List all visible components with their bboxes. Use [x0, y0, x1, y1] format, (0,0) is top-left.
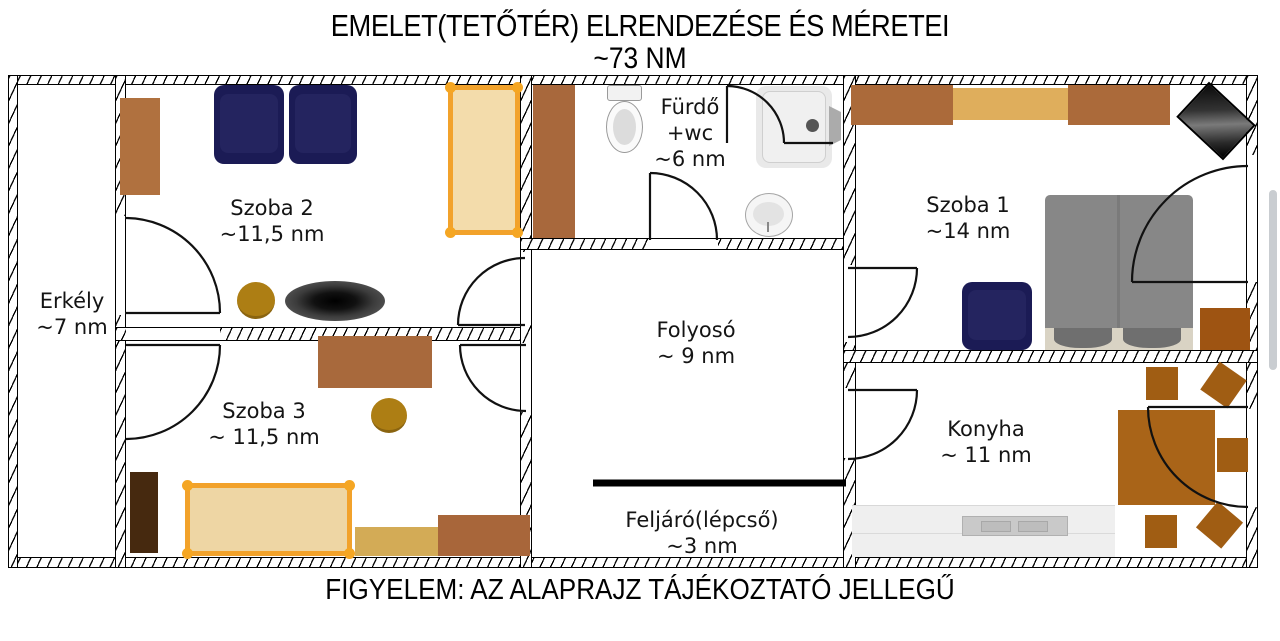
- room-name: Szoba 3: [208, 398, 319, 424]
- room-name: Erkély: [36, 288, 107, 314]
- door-arc-konyha-right: [1148, 407, 1248, 507]
- door-arc-shower: [727, 86, 833, 143]
- room-name: Szoba 1: [926, 192, 1011, 218]
- door-arc-furdo: [650, 173, 717, 240]
- room-area: ~ 11,5 nm: [208, 424, 319, 450]
- room-area: ~11,5 nm: [220, 221, 325, 247]
- room-name: Feljáró(lépcső): [625, 507, 778, 533]
- room-label-furdo: Fürdő +wc ~6 nm: [654, 94, 725, 172]
- door-arc-balcony-szoba2: [125, 218, 220, 313]
- room-area: ~6 nm: [654, 146, 725, 172]
- door-arc-szoba1-balcony: [1132, 166, 1248, 282]
- door-arc-szoba3-top: [126, 345, 220, 439]
- scrollbar-thumb[interactable]: [1269, 190, 1277, 370]
- room-area: ~7 nm: [36, 314, 107, 340]
- room-name: Fürdő: [654, 94, 725, 120]
- room-area: ~3 nm: [625, 533, 778, 559]
- floor-plan-page: EMELET(TETŐTÉR) ELRENDEZÉSE ÉS MÉRETEI ~…: [0, 0, 1280, 641]
- door-arc-szoba3-right: [460, 345, 526, 411]
- room-name: Folyosó: [656, 317, 735, 343]
- room-area: ~14 nm: [926, 218, 1011, 244]
- room-extra: +wc: [654, 120, 725, 146]
- room-name: Konyha: [940, 416, 1031, 442]
- door-arc-szoba2: [458, 258, 525, 325]
- room-label-konyha: Konyha ~ 11 nm: [940, 416, 1031, 468]
- door-arc-szoba1-hall: [848, 268, 917, 337]
- room-label-erkely: Erkély ~7 nm: [36, 288, 107, 340]
- room-label-szoba2: Szoba 2 ~11,5 nm: [220, 195, 325, 247]
- room-area: ~ 9 nm: [656, 343, 735, 369]
- room-name: Szoba 2: [220, 195, 325, 221]
- room-label-szoba3: Szoba 3 ~ 11,5 nm: [208, 398, 319, 450]
- room-area: ~ 11 nm: [940, 442, 1031, 468]
- room-label-folyoso: Folyosó ~ 9 nm: [656, 317, 735, 369]
- door-arc-konyha-hall: [848, 390, 917, 459]
- room-label-feljaro: Feljáró(lépcső) ~3 nm: [625, 507, 778, 559]
- room-label-szoba1: Szoba 1 ~14 nm: [926, 192, 1011, 244]
